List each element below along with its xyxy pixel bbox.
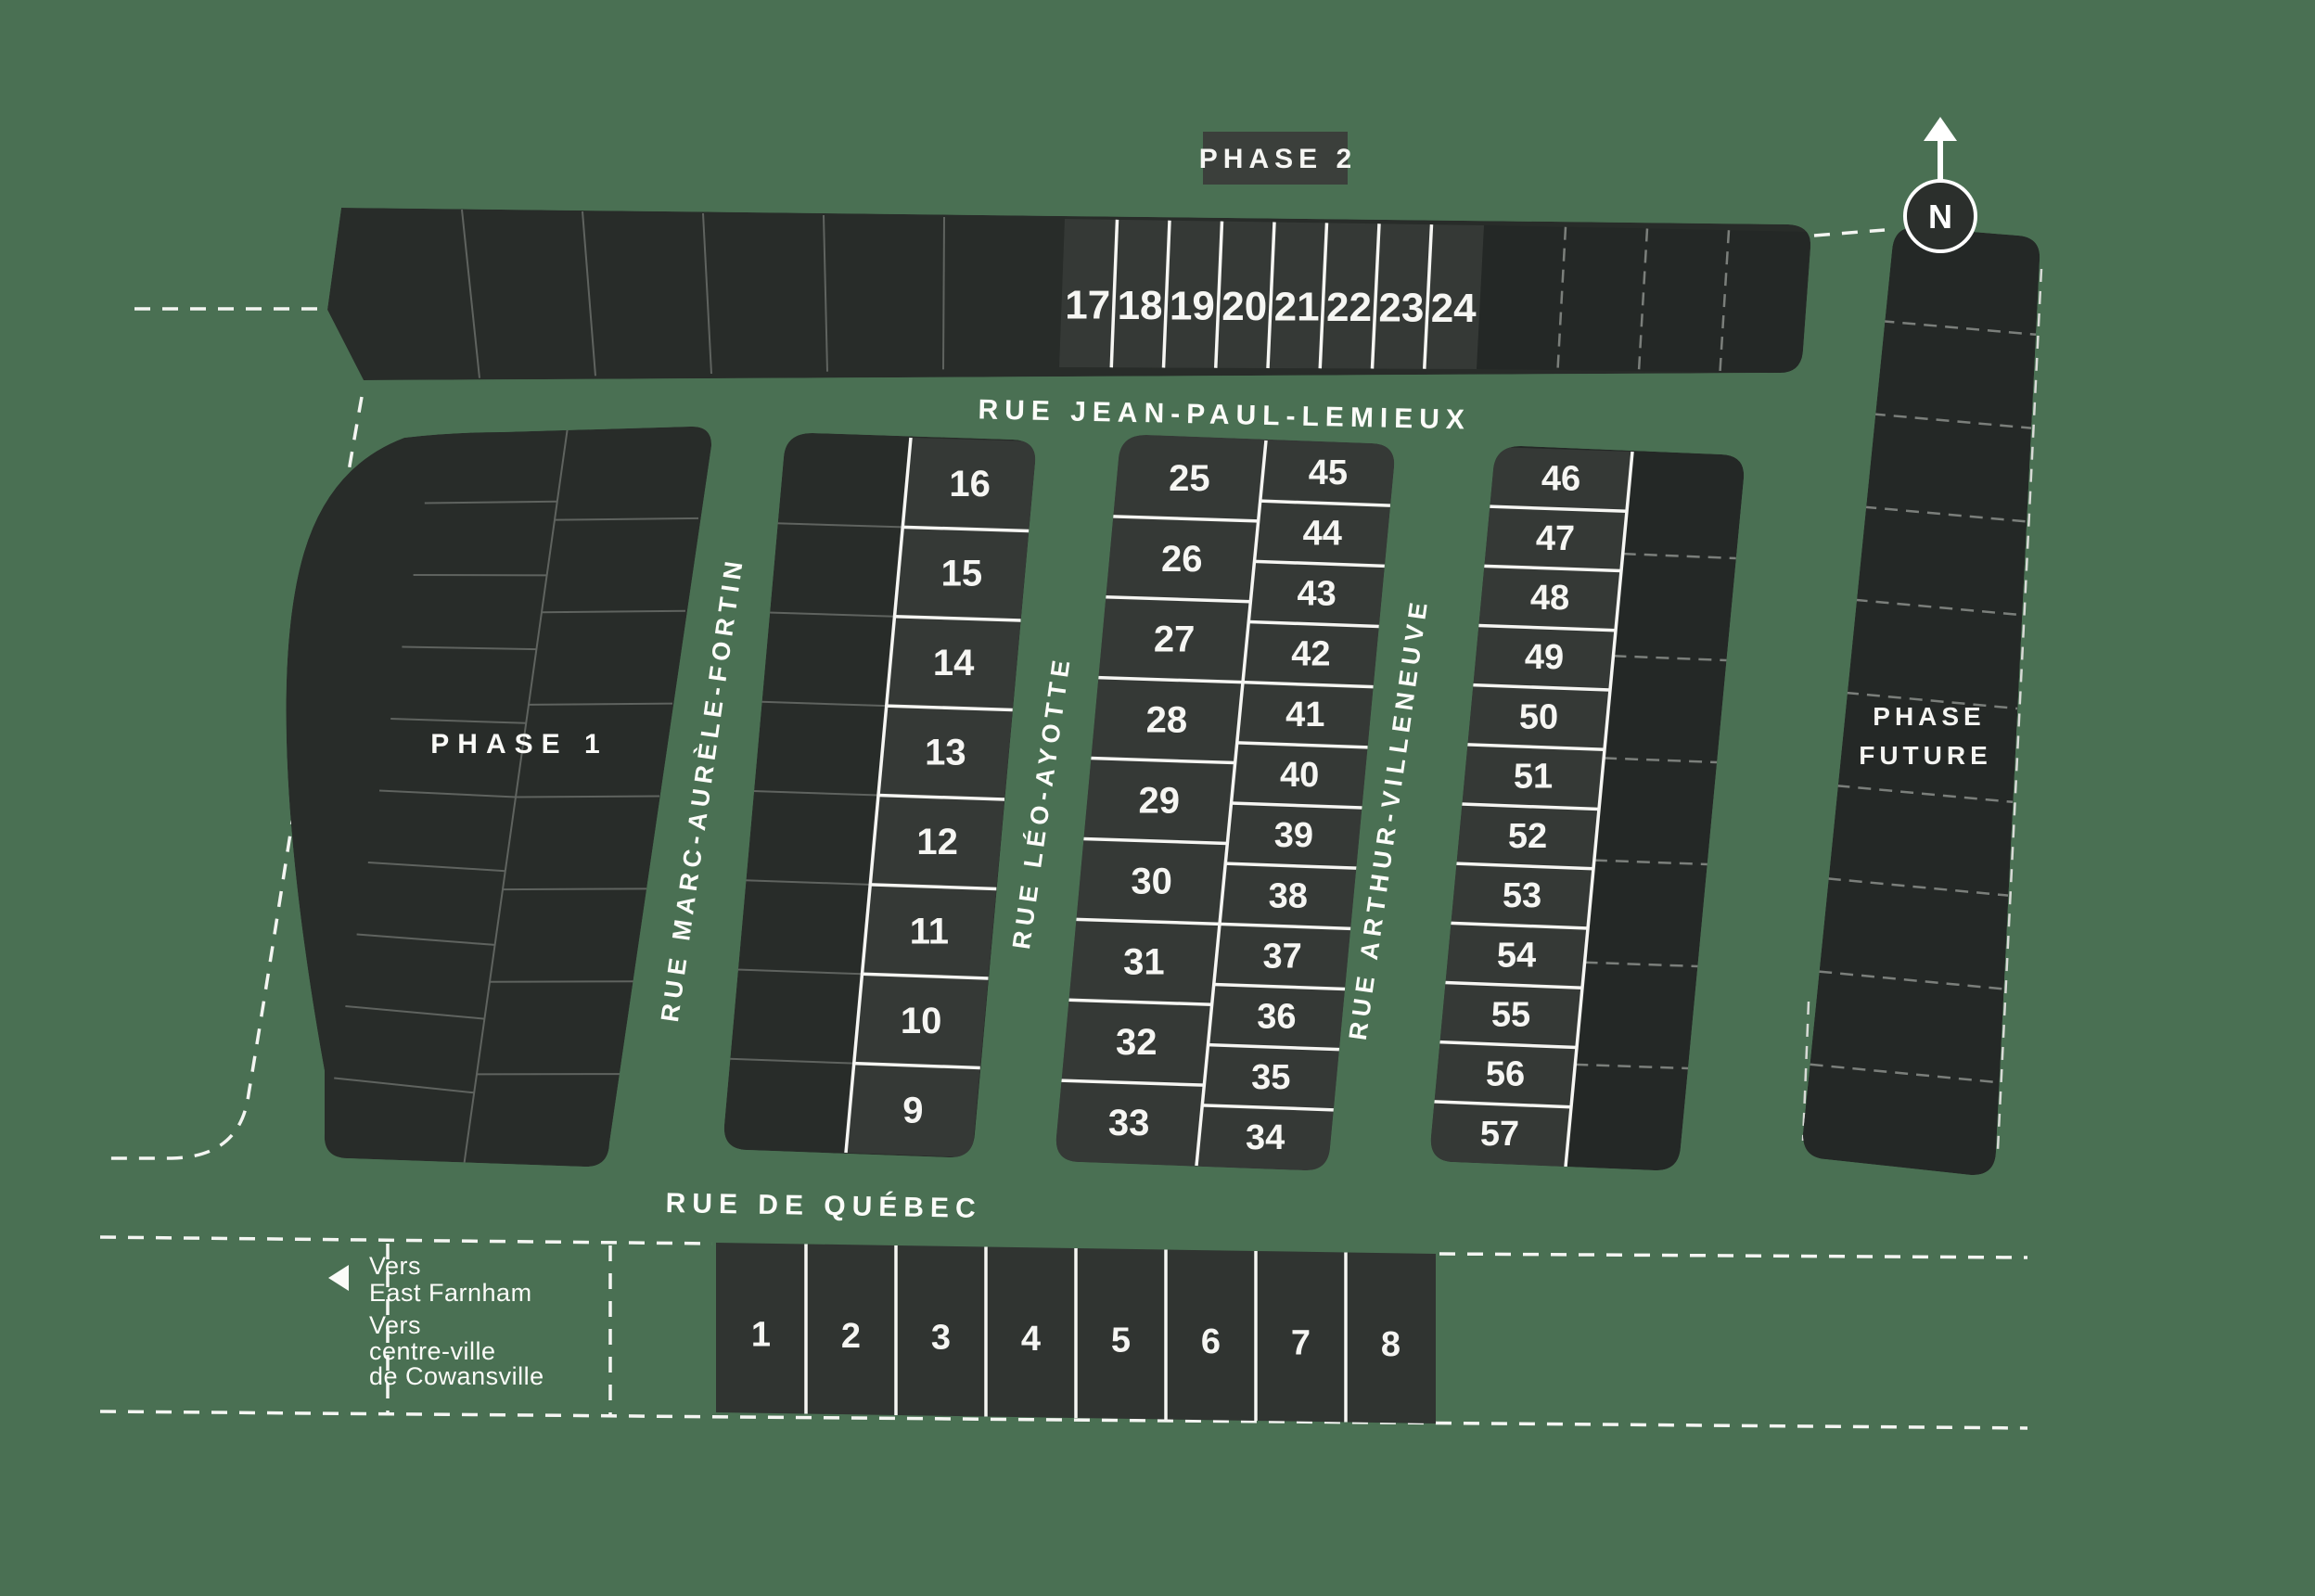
phase1-label: PHASE 1 [430,729,608,760]
phase2-badge-label: PHASE 2 [1199,144,1357,174]
lot-29-label: 29 [1139,781,1181,822]
lot-53-label: 53 [1503,876,1541,915]
lot-20-label: 20 [1221,284,1267,329]
site-plan: 1718192021222324 PHASE 1 161514131211109… [0,0,2315,1596]
street-de-quebec: RUE DE QUÉBEC [665,1187,982,1224]
lot-divider [490,981,633,982]
lot-46-label: 46 [1541,460,1580,499]
lot-12-label: 12 [916,822,958,862]
lot-16-label: 16 [949,464,991,504]
road-dash-northeast-link [1814,230,1885,236]
lot-divider [529,704,672,705]
lot-44-label: 44 [1303,514,1342,553]
north-compass-letter: N [1928,198,1952,236]
lot-45-label: 45 [1309,453,1348,492]
lot-42-label: 42 [1291,635,1330,674]
lot-13-label: 13 [925,733,966,773]
lot-36-label: 36 [1257,998,1296,1037]
direction-cowansville-line2: centre-ville [369,1337,496,1365]
lot-4-label: 4 [1021,1320,1041,1359]
lot-25-label: 25 [1169,458,1210,499]
block-phase1 [287,427,712,1167]
lot-9-label: 9 [902,1090,923,1130]
direction-east-farnham-line1: Vers [369,1252,421,1280]
lot-51-label: 51 [1514,758,1553,797]
g-top-lots: 1718192021222324 [1059,219,1484,369]
lot-21-label: 21 [1274,285,1320,330]
lot-divider [943,217,944,369]
lot-52-label: 52 [1508,817,1547,856]
lot-54-label: 54 [1497,936,1536,975]
direction-notes: Vers East Farnham Vers centre-ville de C… [328,1252,544,1390]
lot-47-label: 47 [1536,519,1575,558]
block-west-column: 161514131211109 [724,433,1037,1157]
street-leo-ayotte: RUE LÉO-AYOTTE [1006,653,1076,951]
lot-18-label: 18 [1118,283,1163,328]
west-arrow-icon [328,1265,349,1291]
lot-39-label: 39 [1274,816,1313,855]
lot-32-label: 32 [1116,1022,1157,1063]
block-east-column: 464748495051525354555657 [1428,446,1744,1170]
lot-34-label: 34 [1246,1118,1285,1157]
phase-future-label-line1: PHASE [1873,702,1985,731]
lot-divider [516,797,659,798]
lot-11-label: 11 [910,911,949,951]
lot-1-label: 1 [751,1316,771,1355]
lot-56-label: 56 [1486,1055,1525,1094]
lot-3-label: 3 [931,1319,951,1358]
phase-future-label-line2: FUTURE [1859,741,1992,770]
block-phase2-row: 1718192021222324 [327,208,1810,380]
street-jean-paul-lemieux: RUE JEAN-PAUL-LEMIEUX [978,394,1471,435]
lot-31-label: 31 [1123,941,1165,982]
lot-6-label: 6 [1201,1322,1221,1361]
direction-cowansville-line3: de Cowansville [369,1362,544,1390]
lot-24-label: 24 [1431,286,1477,331]
lot-2-label: 2 [841,1317,861,1356]
lot-14-label: 14 [933,643,975,683]
lot-40-label: 40 [1280,756,1319,795]
lot-50-label: 50 [1519,697,1558,736]
direction-cowansville-line1: Vers [369,1311,421,1339]
lot-22-label: 22 [1326,285,1372,330]
lot-17-label: 17 [1065,283,1110,328]
lot-5-label: 5 [1111,1321,1131,1360]
g-bottom-lots: 12345678 [716,1243,1436,1424]
block-central: 252627282930313233 454443424140393837363… [1054,435,1396,1170]
lot-43-label: 43 [1297,574,1336,613]
lot-33-label: 33 [1108,1103,1150,1143]
lot-41-label: 41 [1285,696,1324,734]
road-dash-south-upper-left [100,1237,712,1244]
lot-49-label: 49 [1525,638,1564,677]
lot-48-label: 48 [1530,579,1569,618]
lot-30-label: 30 [1131,861,1172,901]
lot-37-label: 37 [1262,937,1301,976]
direction-east-farnham-line2: East Farnham [369,1279,532,1307]
lot-23-label: 23 [1378,286,1424,331]
lot-35-label: 35 [1251,1058,1290,1097]
lot-55-label: 55 [1491,995,1530,1034]
lot-28-label: 28 [1146,700,1188,741]
lot-26-label: 26 [1161,539,1203,580]
north-arrow-head-icon [1924,117,1957,141]
lot-57-label: 57 [1480,1115,1519,1154]
north-compass: N [1905,117,1976,251]
block-bottom-row: 12345678 [716,1243,1436,1424]
road-dash-south-upper-right [1439,1254,2027,1258]
lot-38-label: 38 [1269,876,1308,915]
lot-10-label: 10 [901,1001,942,1041]
lot-divider [503,888,646,889]
lot-19-label: 19 [1170,284,1215,329]
lot-15-label: 15 [941,554,983,594]
site-plan-svg: 1718192021222324 PHASE 1 161514131211109… [0,0,2315,1596]
lot-7-label: 7 [1291,1324,1311,1363]
lot-27-label: 27 [1154,619,1196,660]
lot-8-label: 8 [1381,1325,1401,1364]
